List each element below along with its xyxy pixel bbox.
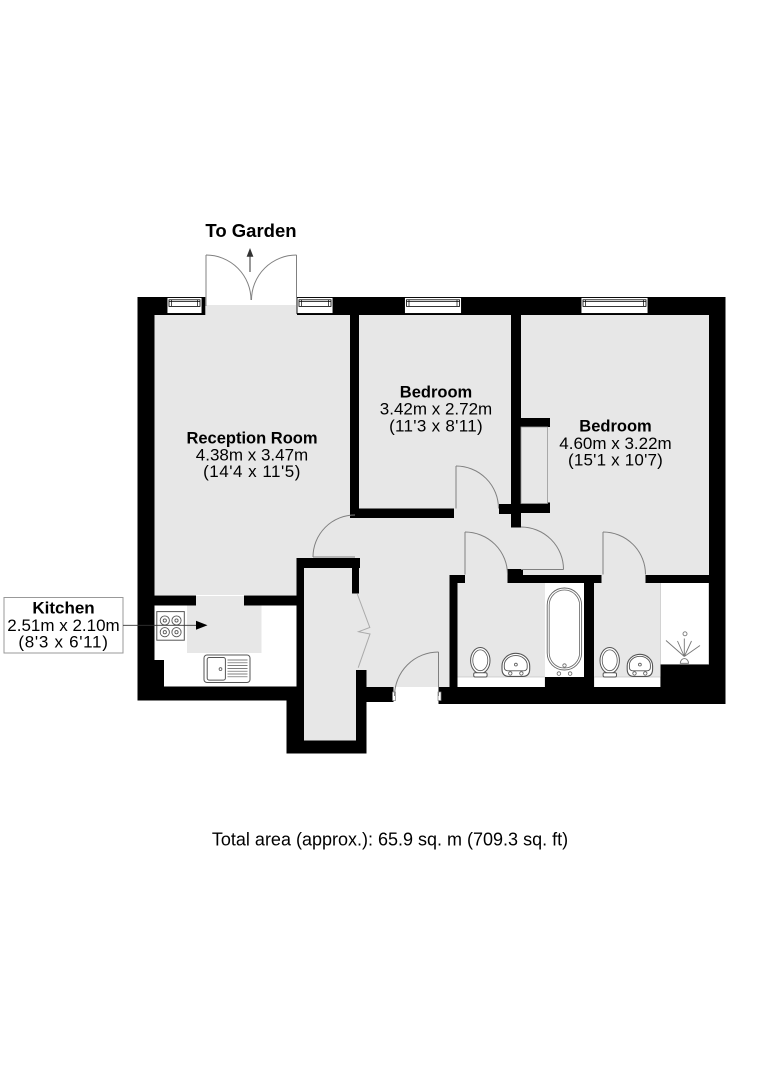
svg-text:(8'3 x 6'11): (8'3 x 6'11) [18,633,108,652]
svg-text:(15'1 x 10'7): (15'1 x 10'7) [568,451,663,470]
svg-text:Bedroom: Bedroom [579,418,651,436]
svg-text:To Garden: To Garden [205,220,296,241]
svg-text:Total area (approx.): 65.9 sq.: Total area (approx.): 65.9 sq. m (709.3 … [212,830,568,850]
svg-text:Kitchen: Kitchen [32,599,94,618]
svg-text:(14'4 x 11'5): (14'4 x 11'5) [203,462,301,481]
svg-text:(11'3 x 8'11): (11'3 x 8'11) [389,417,483,436]
